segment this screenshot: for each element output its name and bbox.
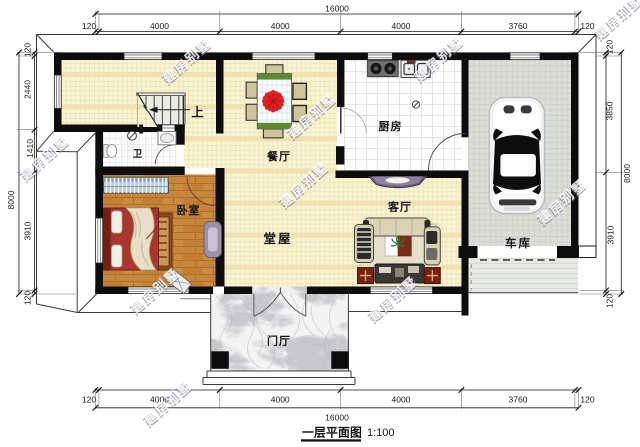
svg-text:120: 120 — [82, 395, 96, 405]
svg-text:8000: 8000 — [6, 190, 16, 209]
svg-text:4000: 4000 — [271, 21, 290, 31]
svg-text:3760: 3760 — [509, 21, 528, 31]
svg-text:车库: 车库 — [505, 236, 532, 250]
svg-text:4000: 4000 — [150, 21, 169, 31]
svg-text:120: 120 — [605, 40, 615, 54]
svg-text:卫: 卫 — [133, 149, 143, 160]
svg-text:3760: 3760 — [509, 395, 528, 405]
svg-text:3850: 3850 — [605, 101, 615, 120]
svg-text:120: 120 — [23, 291, 33, 305]
svg-text:120: 120 — [23, 43, 33, 57]
svg-text:4000: 4000 — [271, 395, 290, 405]
svg-text:1410: 1410 — [25, 139, 35, 158]
svg-text:120: 120 — [580, 395, 594, 405]
svg-text:3910: 3910 — [606, 225, 616, 244]
svg-text:3910: 3910 — [23, 221, 33, 240]
svg-text:门厅: 门厅 — [267, 334, 291, 348]
svg-text:卧室: 卧室 — [177, 203, 201, 217]
svg-text:120: 120 — [605, 294, 615, 308]
svg-text:2440: 2440 — [23, 80, 33, 99]
svg-text:4000: 4000 — [392, 395, 411, 405]
svg-text:客厅: 客厅 — [387, 200, 412, 214]
svg-text:8000: 8000 — [622, 164, 632, 183]
svg-text:16000: 16000 — [325, 4, 349, 14]
svg-text:一层平面图: 一层平面图 — [302, 426, 362, 440]
svg-text:120: 120 — [82, 21, 96, 31]
svg-text:16000: 16000 — [325, 413, 349, 423]
svg-text:厨房: 厨房 — [379, 119, 403, 133]
svg-text:1:100: 1:100 — [367, 427, 395, 439]
svg-text:4000: 4000 — [392, 21, 411, 31]
svg-text:堂屋: 堂屋 — [263, 231, 292, 246]
svg-text:餐厅: 餐厅 — [266, 149, 291, 163]
svg-text:上: 上 — [191, 105, 204, 120]
